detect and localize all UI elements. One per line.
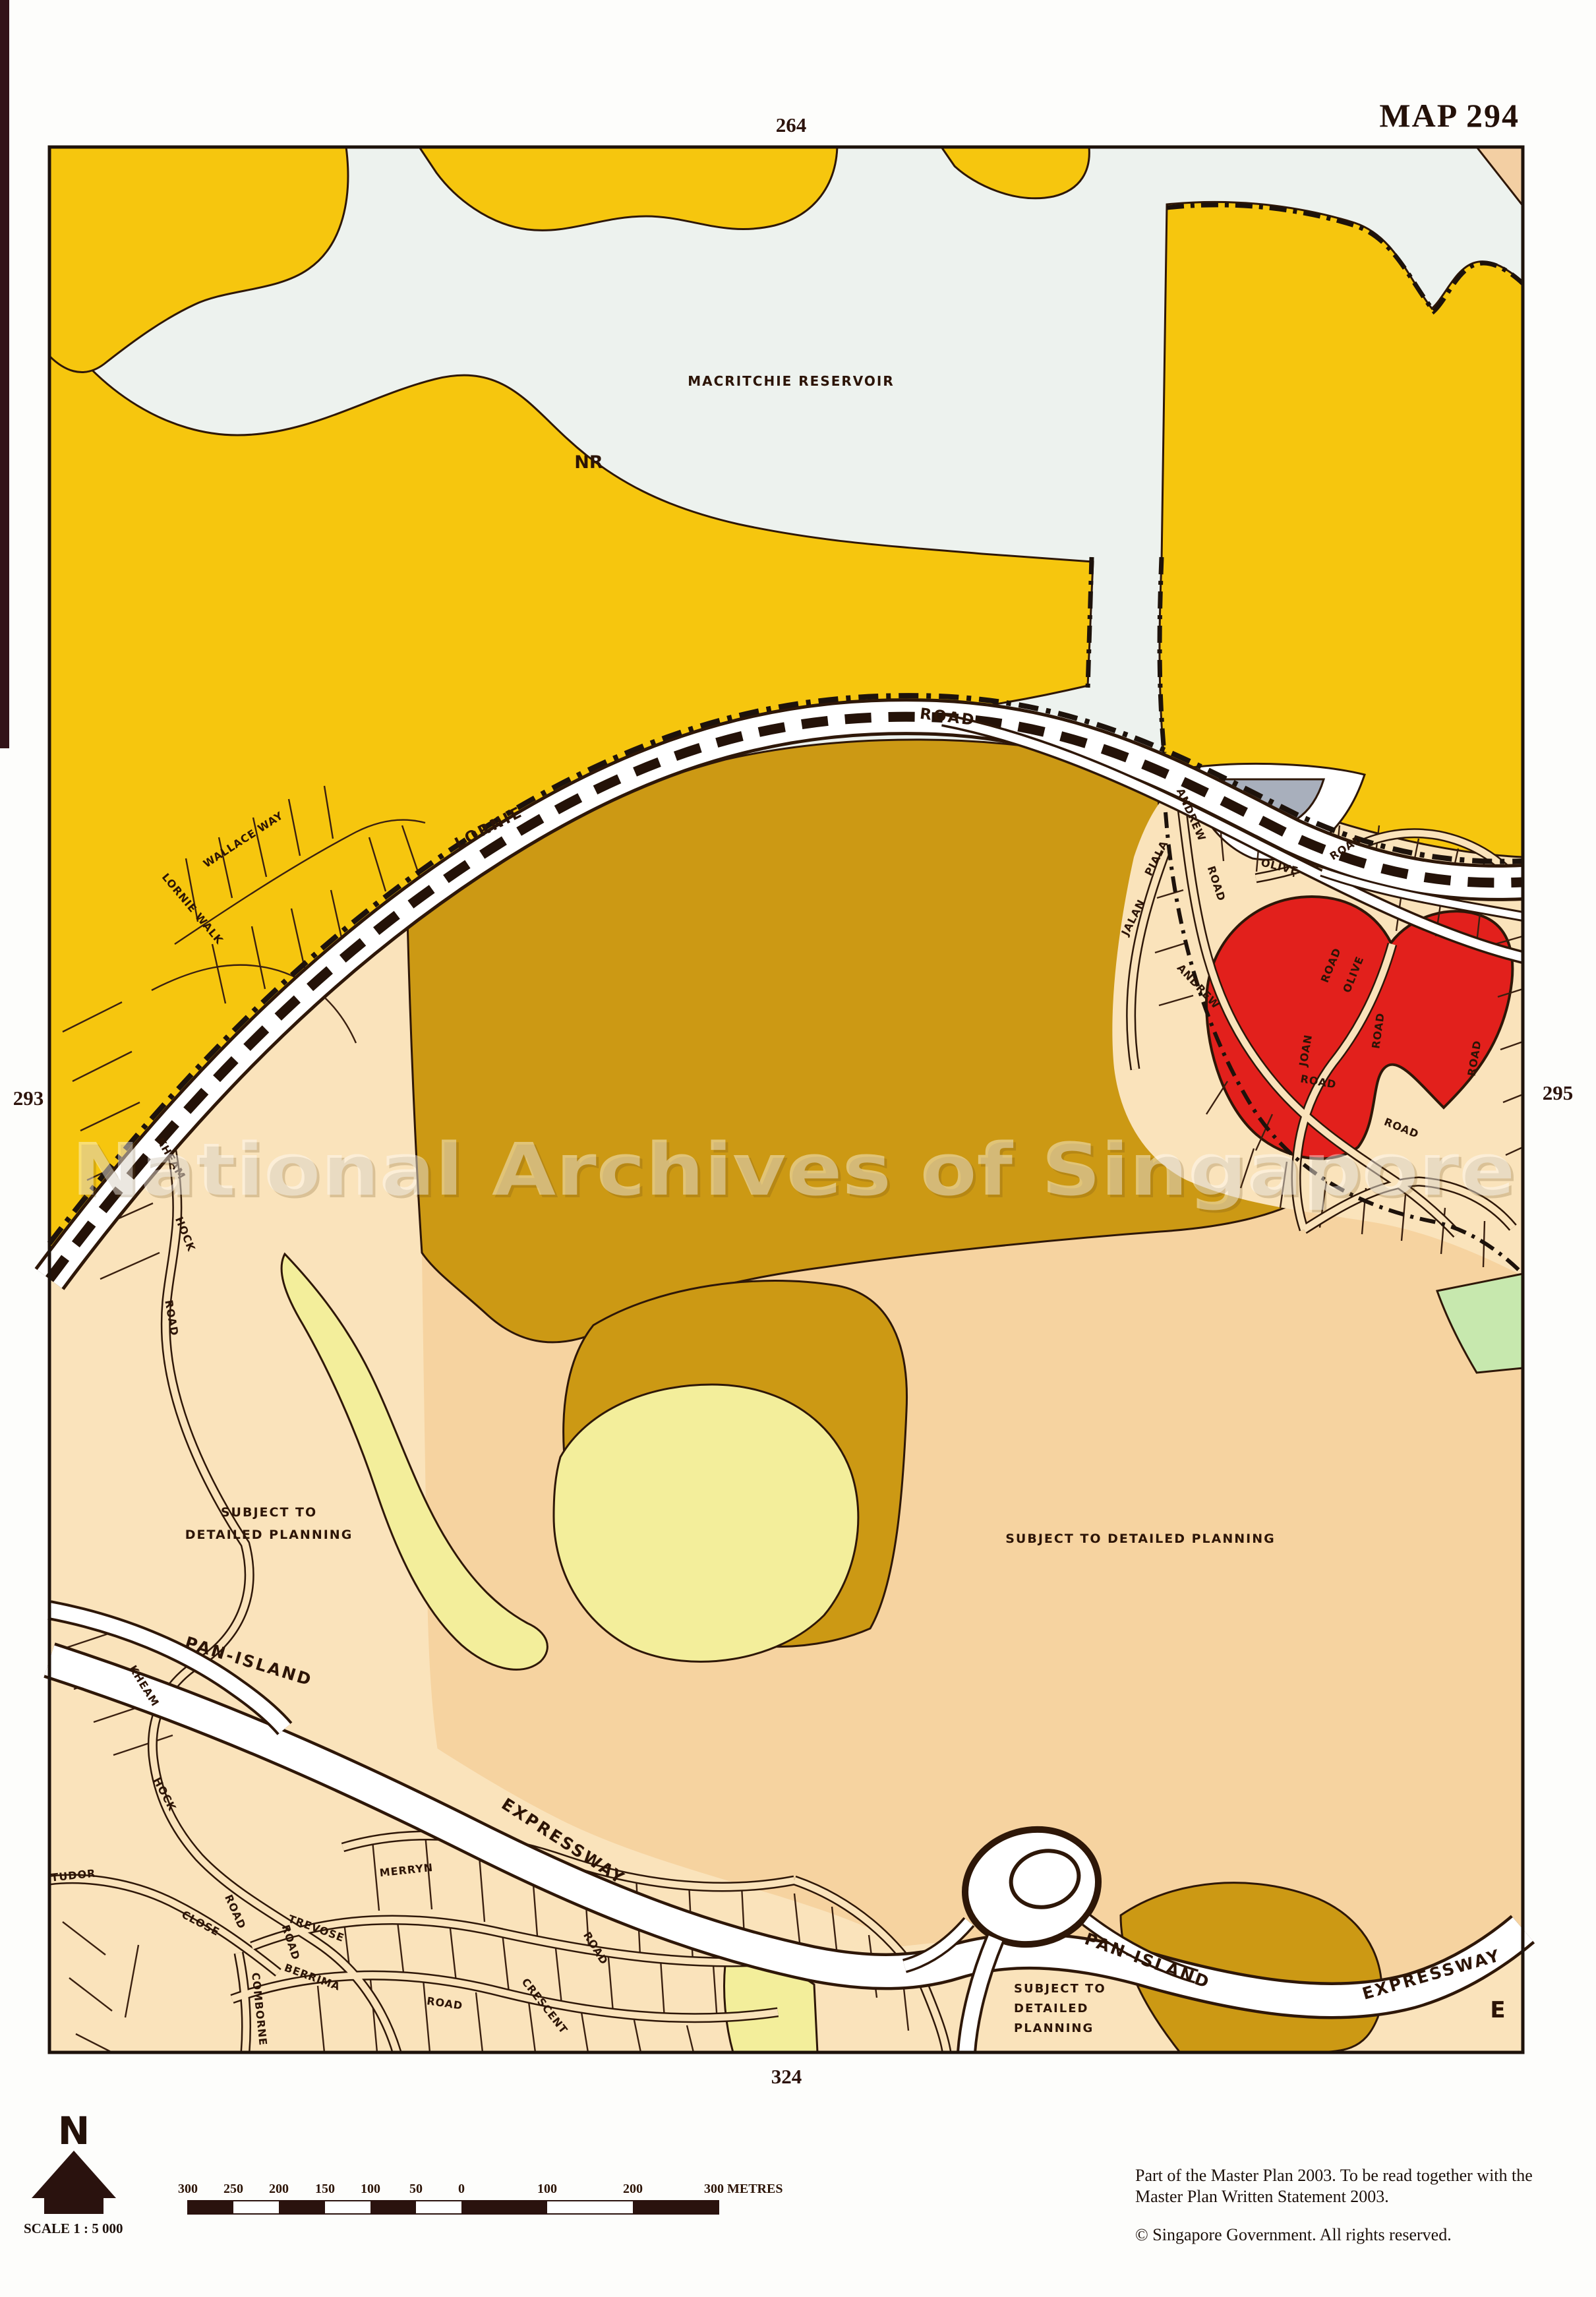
scale-tick: 150: [315, 2182, 335, 2196]
scale-caption: SCALE 1 : 5 000: [24, 2221, 156, 2237]
planning-bottom-label-1: SUBJECT TO: [1014, 1982, 1106, 1996]
north-arrow-icon: [32, 2151, 116, 2214]
master-plan-note: Part of the Master Plan 2003. To be read…: [1135, 2165, 1557, 2207]
copyright-note: © Singapore Government. All rights reser…: [1135, 2224, 1557, 2246]
scale-seg: [279, 2201, 325, 2214]
scale-seg: [188, 2201, 233, 2214]
scale-tick: 100: [361, 2182, 380, 2196]
master-plan-map: MACRITCHIE RESERVOIR NR LORNIE ROAD PAN-…: [0, 0, 1596, 2297]
watermark: National Archives of Singapore: [71, 1127, 1515, 1212]
scale-tick: 0: [458, 2182, 465, 2196]
nature-reserve-east: [1160, 202, 1523, 857]
scale-bar: 300 250 200 150 100 50 0 100 200 300 MET…: [178, 2182, 783, 2214]
section-letter: E: [1490, 1997, 1505, 2023]
scale-seg: [461, 2201, 547, 2214]
scale-tick: 250: [223, 2182, 243, 2196]
map-page: MAP 294 264 324 293 295: [0, 0, 1596, 2297]
note-line-1: Part of the Master Plan 2003. To be read…: [1135, 2165, 1557, 2186]
scale-seg: [633, 2201, 719, 2214]
planning-right-label: SUBJECT TO DETAILED PLANNING: [1005, 1532, 1275, 1546]
scale-seg: [370, 2201, 416, 2214]
scale-tick: 200: [623, 2182, 643, 2196]
planning-bottom-label-3: PLANNING: [1014, 2021, 1094, 2035]
reservoir-label: MACRITCHIE RESERVOIR: [688, 373, 895, 389]
note-line-2: Master Plan Written Statement 2003.: [1135, 2186, 1557, 2207]
planning-left-label-2: DETAILED PLANNING: [185, 1528, 353, 1542]
scale-tick: 300: [178, 2182, 198, 2196]
scale-tick: 100: [537, 2182, 557, 2196]
planning-left-label-1: SUBJECT TO: [221, 1505, 317, 1520]
planning-bottom-label-2: DETAILED: [1014, 2002, 1088, 2015]
nature-reserve-label: NR: [574, 452, 603, 473]
open-space-lobe: [554, 1385, 858, 1661]
north-letter: N: [58, 2108, 90, 2153]
scale-tick: 200: [269, 2182, 289, 2196]
scale-end-label: 300 METRES: [704, 2182, 783, 2196]
scale-tick: 50: [409, 2182, 423, 2196]
